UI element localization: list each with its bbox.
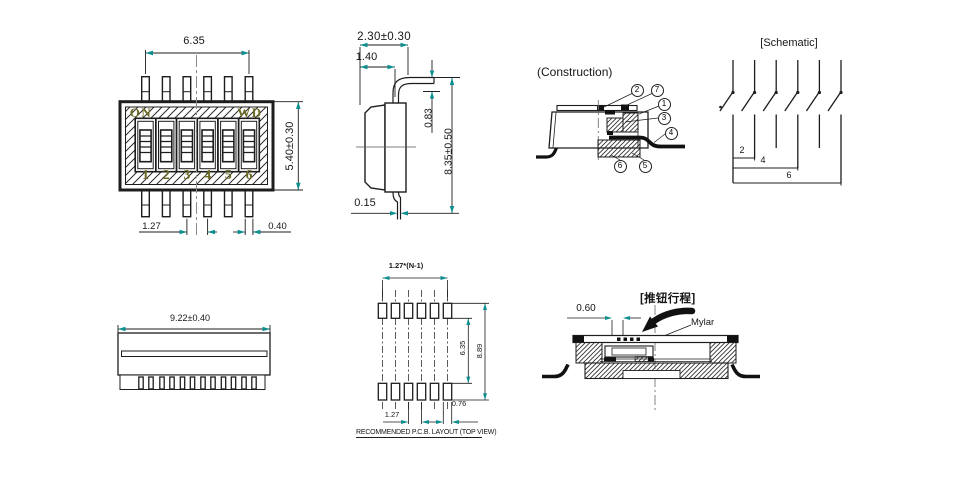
- mylar-label: Mylar: [691, 318, 719, 328]
- pcb-layout-panel: [350, 258, 515, 458]
- marking-on: ON: [127, 106, 155, 119]
- cover-film: [573, 336, 738, 343]
- marking-wd: WD: [236, 106, 264, 119]
- dim-overall-length: 9.22±0.40: [166, 314, 214, 323]
- dim-pad-outer-span: 8.89: [476, 340, 484, 362]
- dim-overall-width: 8.35±0.50: [444, 117, 455, 187]
- dimension-arrows: [605, 316, 630, 320]
- callout-3: 3: [658, 112, 671, 125]
- right-lead: [732, 365, 760, 377]
- schematic-pos-2: 2: [738, 146, 746, 155]
- callout-7: 7: [651, 84, 664, 97]
- dim-pin-width: 0.40: [267, 222, 288, 232]
- dim-lead-thickness: 0.15: [351, 198, 379, 209]
- dim-body-depth: 1.40: [353, 52, 380, 63]
- schematic-title: [Schematic]: [752, 38, 826, 49]
- dim-total-pitch: 1.27*(N-1): [383, 262, 429, 270]
- position-number: 4: [201, 169, 215, 183]
- pcb-layout-caption: RECOMMENDED P.C.B. LAYOUT (TOP VIEW): [356, 429, 482, 438]
- position-number: 2: [159, 169, 173, 183]
- dip-switch-drawing-sheet: 6.35 5.40±0.30 1.27 0.40 ON WD 1 2 3 4 5…: [0, 0, 960, 488]
- travel-label: [推钮行程]: [640, 294, 704, 306]
- top-lead: [393, 78, 434, 104]
- position-number: 1: [139, 169, 153, 183]
- dim-top-width: 6.35: [181, 36, 207, 47]
- callout-4: 4: [665, 127, 678, 140]
- dim-pad-width: 0.76: [450, 400, 468, 408]
- switch-symbols: [719, 60, 842, 183]
- callout-6: 6: [614, 160, 627, 173]
- left-lead: [542, 365, 568, 377]
- callout-5: 5: [639, 160, 652, 173]
- dim-pitch: 1.27: [141, 222, 162, 232]
- dim-travel: 0.60: [574, 304, 598, 314]
- side-view-cover: [365, 105, 385, 190]
- dim-depth: 2.30±0.30: [348, 32, 420, 44]
- front-view-strip: [122, 351, 268, 357]
- pcb-dimensions: [383, 278, 490, 424]
- dim-lead-height: 0.83: [424, 104, 434, 131]
- callout-1: 1: [658, 98, 671, 111]
- dim-pad-pitch: 1.27: [383, 411, 401, 419]
- construction-title: (Construction): [537, 66, 627, 78]
- section-body: [576, 343, 736, 379]
- schematic-pos-4: 4: [759, 156, 767, 165]
- bottom-lead: [393, 192, 401, 220]
- travel-arrow: [654, 311, 692, 321]
- side-view-body: [385, 103, 406, 192]
- dim-pad-inner-span: 6.35: [459, 337, 467, 359]
- position-number: 3: [180, 169, 194, 183]
- pcb-layout-drawing: [350, 258, 515, 458]
- schematic-pos-6: 6: [785, 171, 793, 180]
- position-number: 5: [221, 169, 235, 183]
- position-number: 6: [242, 169, 256, 183]
- solder-pads: [378, 303, 451, 400]
- switch-cells: [135, 118, 259, 171]
- top-view-drawing: [95, 30, 310, 245]
- top-view-panel: [95, 30, 310, 245]
- dim-height: 5.40±0.30: [285, 104, 297, 188]
- callout-2: 2: [631, 84, 644, 97]
